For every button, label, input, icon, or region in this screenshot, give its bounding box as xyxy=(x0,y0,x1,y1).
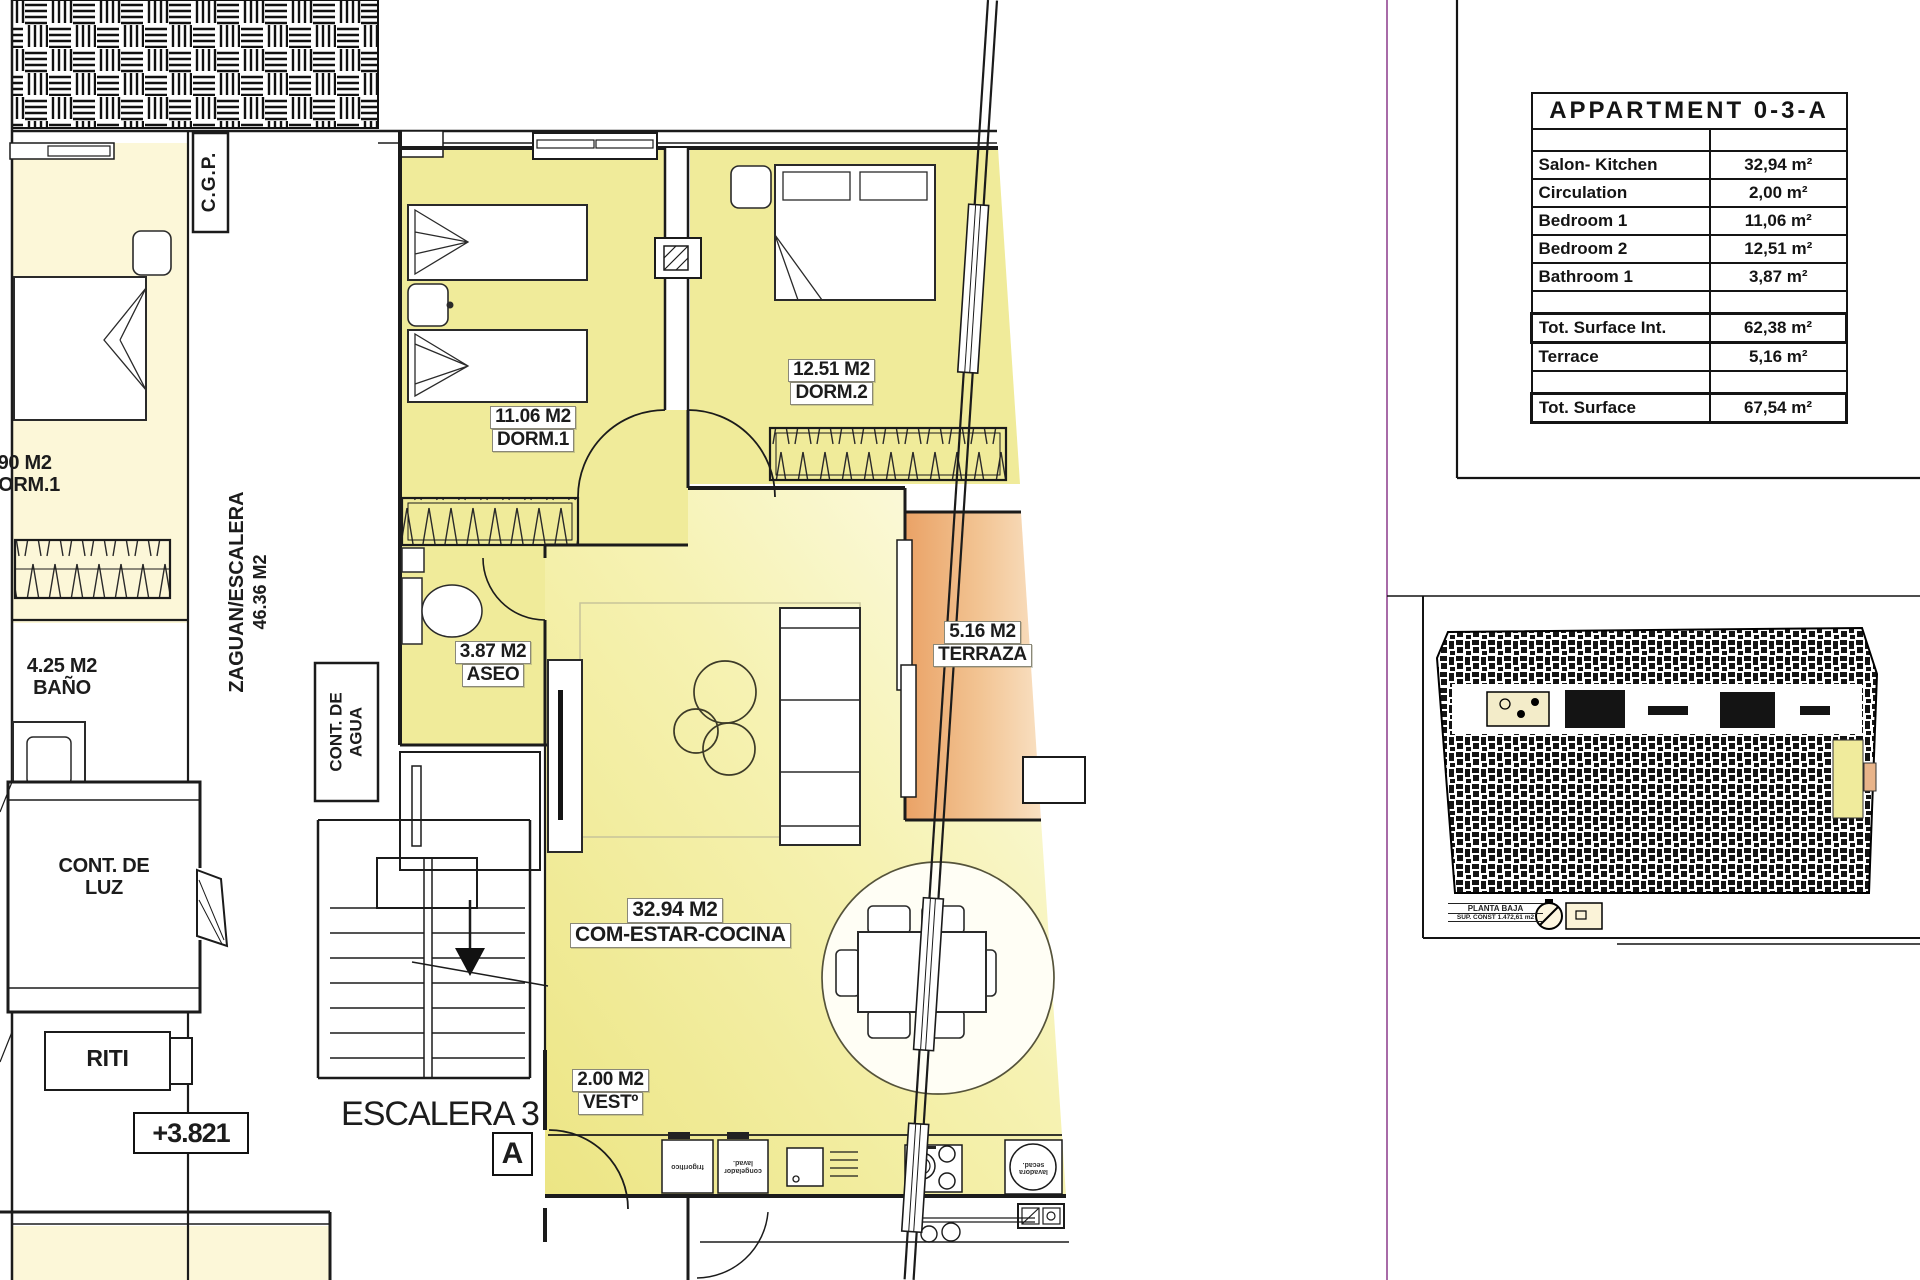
label-terraza: 5.16 M2 TERRAZA xyxy=(930,621,1035,667)
drawing-sheet: 11.06 M2 DORM.1 12.51 M2 DORM.2 3.87 M2 … xyxy=(0,0,1920,1280)
appliance-label-2: congelador lavad. xyxy=(720,1142,766,1191)
appliance-label-3: lavadora secad. xyxy=(1010,1150,1057,1186)
salon-area: 32.94 M2 xyxy=(627,898,722,923)
bano-area: 4.25 M2 xyxy=(27,655,97,677)
label-dorm1: 11.06 M2 DORM.1 xyxy=(488,406,578,452)
mini-plan-caption-line1: PLANTA BAJA xyxy=(1448,903,1543,914)
label-escalera: ESCALERA 3 xyxy=(300,1096,580,1133)
dorm2-name: DORM.2 xyxy=(790,382,872,405)
mini-plan-caption-line2: SUP. CONST 1.472,61 m2 xyxy=(1448,914,1543,922)
table-title: APPARTMENT 0-3-A xyxy=(1532,93,1847,129)
table-row: Bathroom 1 3,87 m² xyxy=(1532,263,1847,291)
table-terrace-row: Terrace 5,16 m² xyxy=(1532,343,1847,372)
vestibulo-area: 2.00 M2 xyxy=(572,1069,649,1092)
dorm1-area: 11.06 M2 xyxy=(490,406,576,429)
label-salon: 32.94 M2 COM-ESTAR-COCINA xyxy=(570,898,780,948)
label-vestibulo: 2.00 M2 VESTº xyxy=(568,1069,653,1115)
appliance-label-1: frigorífico xyxy=(664,1142,711,1191)
aseo-name: ASEO xyxy=(462,664,525,687)
aseo-area: 3.87 M2 xyxy=(455,641,532,664)
vestibulo-name: VESTº xyxy=(578,1092,643,1115)
label-riti: RITI xyxy=(45,1046,170,1071)
label-zaguan: ZAGUAN/ESCALERA 46.36 M2 xyxy=(226,491,272,692)
cont-agua-line1: CONT. DE xyxy=(326,692,345,771)
label-neighbor-dorm1: .90 M2 DORM.1 xyxy=(0,452,82,496)
cont-luz-room xyxy=(0,782,227,1062)
neighbor-dorm1-name: DORM.1 xyxy=(0,474,60,496)
label-bano: 4.25 M2 BAÑO xyxy=(12,655,112,699)
level-marker: +3.821 xyxy=(133,1112,249,1154)
area-table: APPARTMENT 0-3-A Salon- Kitchen 32,94 m²… xyxy=(1530,92,1848,424)
label-cont-luz: CONT. DE LUZ xyxy=(20,855,188,899)
salon-name: COM-ESTAR-COCINA xyxy=(570,923,791,948)
cont-agua-line2: AGUA xyxy=(346,707,365,757)
label-aseo: 3.87 M2 ASEO xyxy=(452,641,534,687)
terraza-area: 5.16 M2 xyxy=(944,621,1021,644)
label-cont-agua: CONT. DE AGUA xyxy=(326,692,365,771)
label-cgp: C.G.P. xyxy=(199,152,221,213)
mini-plan-caption: PLANTA BAJA SUP. CONST 1.472,61 m2 xyxy=(1448,903,1543,922)
terraza-name: TERRAZA xyxy=(933,644,1032,667)
zaguan-name: ZAGUAN/ESCALERA xyxy=(226,491,248,692)
table-title-row: APPARTMENT 0-3-A xyxy=(1532,93,1847,129)
table-subtotal-row: Tot. Surface Int. 62,38 m² xyxy=(1532,314,1847,343)
cont-luz-line2: LUZ xyxy=(85,877,123,899)
table-row: Bedroom 1 11,06 m² xyxy=(1532,207,1847,235)
section-mark-a: A xyxy=(492,1132,533,1176)
table-row: Circulation 2,00 m² xyxy=(1532,179,1847,207)
table-total-row: Tot. Surface 67,54 m² xyxy=(1532,394,1847,423)
cont-luz-line1: CONT. DE xyxy=(59,855,150,877)
label-dorm2: 12.51 M2 DORM.2 xyxy=(784,359,879,405)
neighbor-dorm1-area: .90 M2 xyxy=(0,452,52,474)
paving-hatch xyxy=(12,0,378,128)
table-row: Bedroom 2 12,51 m² xyxy=(1532,235,1847,263)
mini-plan xyxy=(1437,628,1877,929)
table-row: Salon- Kitchen 32,94 m² xyxy=(1532,151,1847,179)
bano-name: BAÑO xyxy=(33,677,91,699)
dorm2-area: 12.51 M2 xyxy=(788,359,875,382)
dorm1-name: DORM.1 xyxy=(492,429,574,452)
zaguan-area: 46.36 M2 xyxy=(250,554,270,629)
shaft-symbol xyxy=(655,238,701,278)
